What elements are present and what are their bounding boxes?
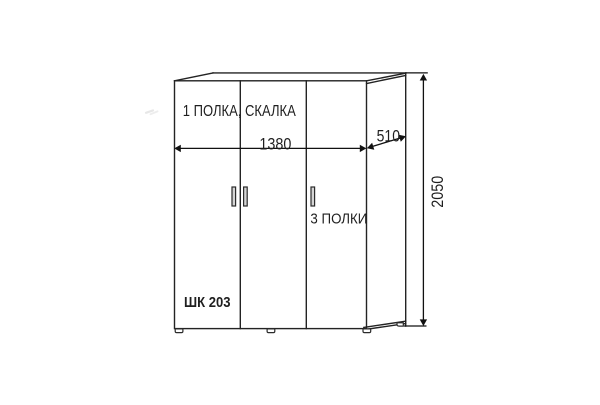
svg-text:3 ПОЛКИ: 3 ПОЛКИ	[310, 211, 367, 227]
svg-text:1380: 1380	[259, 134, 291, 153]
svg-text:1 ПОЛКА, СКАЛКА: 1 ПОЛКА, СКАЛКА	[183, 103, 296, 120]
svg-text:510: 510	[377, 126, 400, 145]
svg-text:2050: 2050	[429, 176, 447, 208]
svg-text:ШК 203: ШК 203	[184, 294, 231, 311]
